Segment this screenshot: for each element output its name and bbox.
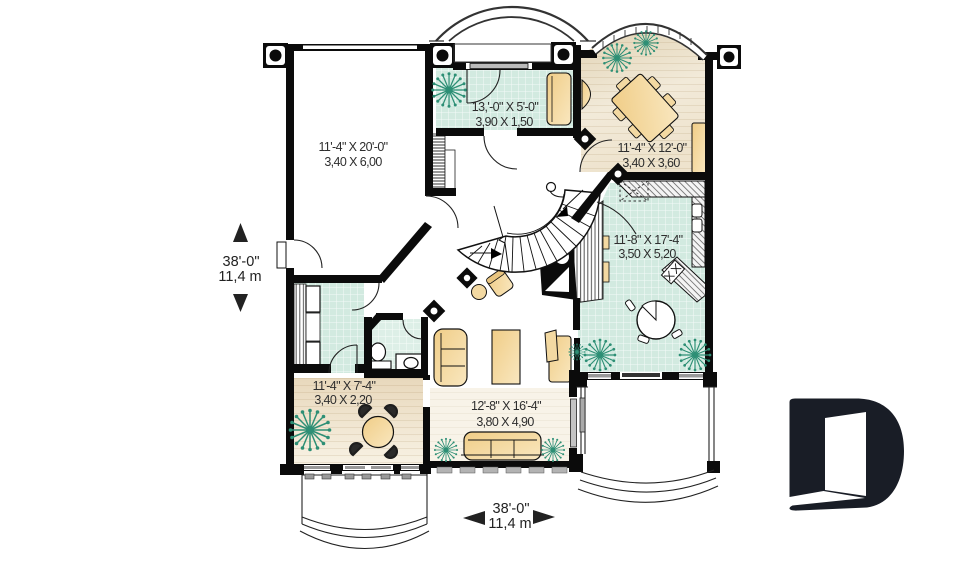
svg-text:11'-8" X 17'-4": 11'-8" X 17'-4" <box>613 233 682 247</box>
svg-text:11,4 m: 11,4 m <box>488 516 531 532</box>
svg-text:3,40 X 3,60: 3,40 X 3,60 <box>622 156 680 170</box>
svg-text:11'-4" X 12'-0": 11'-4" X 12'-0" <box>617 141 686 155</box>
svg-text:38'-0": 38'-0" <box>493 501 530 517</box>
svg-text:3,50 X 5,20: 3,50 X 5,20 <box>618 247 676 261</box>
svg-text:3,90 X 1,50: 3,90 X 1,50 <box>475 115 533 129</box>
svg-text:3,40 X 6,00: 3,40 X 6,00 <box>324 155 382 169</box>
svg-text:13,'-0" X 5'-0": 13,'-0" X 5'-0" <box>472 100 539 114</box>
svg-text:11,4 m: 11,4 m <box>218 269 261 285</box>
svg-text:3,80 X 4,90: 3,80 X 4,90 <box>476 415 534 429</box>
svg-text:11'-4" X 20'-0": 11'-4" X 20'-0" <box>318 140 387 154</box>
svg-text:3,40 X 2,20: 3,40 X 2,20 <box>314 393 372 407</box>
svg-text:12'-8" X 16'-4": 12'-8" X 16'-4" <box>471 399 541 413</box>
svg-text:38'-0": 38'-0" <box>223 254 260 270</box>
svg-text:11'-4" X 7'-4": 11'-4" X 7'-4" <box>313 379 376 393</box>
